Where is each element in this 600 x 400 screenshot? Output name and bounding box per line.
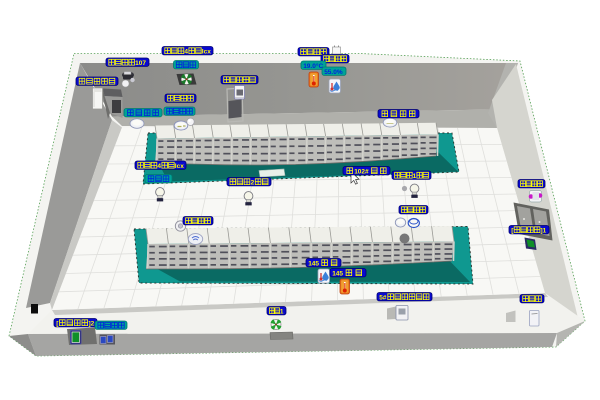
svg-text:55.0%: 55.0% — [324, 69, 343, 76]
svg-text:145: 145 — [308, 260, 319, 267]
svg-text:5#: 5# — [379, 294, 387, 301]
svg-text:2: 2 — [251, 179, 255, 186]
svg-text:1: 1 — [413, 173, 417, 180]
svg-text:19.0°C: 19.0°C — [303, 62, 323, 70]
svg-text:Icx: Icx — [175, 163, 184, 170]
svg-text:102#: 102# — [354, 168, 369, 175]
svg-text:]2: ]2 — [89, 320, 95, 327]
svg-text:107: 107 — [135, 60, 146, 67]
svg-text:4: 4 — [184, 48, 188, 55]
svg-text:1: 1 — [280, 308, 284, 315]
svg-text:4: 4 — [157, 163, 161, 170]
svg-text:]1: ]1 — [541, 227, 547, 234]
svg-text:145: 145 — [332, 270, 343, 277]
svg-text:Icx: Icx — [202, 48, 211, 55]
